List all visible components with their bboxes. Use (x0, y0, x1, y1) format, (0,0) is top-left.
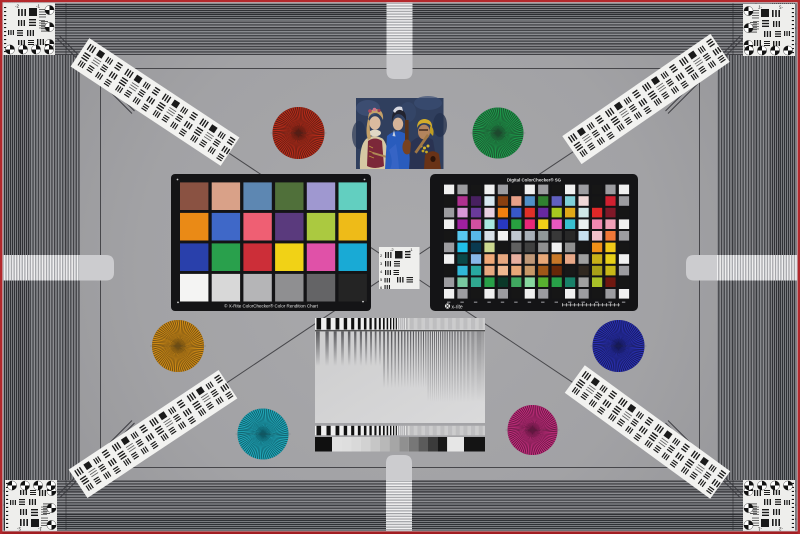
svg-text:© X-Rite ColorChecker® Color: © X-Rite ColorChecker® Color Rendition C… (224, 303, 318, 309)
svg-text:x-rite: x-rite (452, 304, 463, 310)
svg-text:Digital ColorChecker® SG: Digital ColorChecker® SG (507, 178, 562, 183)
